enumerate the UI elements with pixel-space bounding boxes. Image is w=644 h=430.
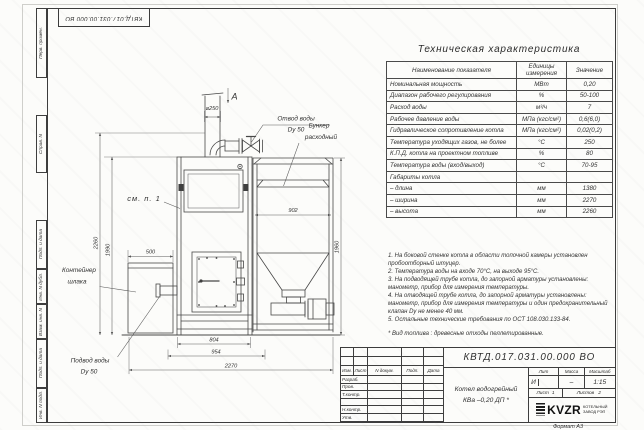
title-block-revision-grid: Изм. Лист N докум. Подп. Дата Разраб. Пр…: [341, 348, 444, 422]
margin-label: Взам. инв. N: [39, 308, 44, 336]
spec-table: Наименование показателя Единицы измерени…: [386, 61, 613, 218]
margin-label: Инв. N подл.: [39, 391, 44, 419]
margin-box-perv-primen: Перв. примен.: [36, 8, 47, 78]
table-row: – ширинамм2270: [387, 194, 613, 206]
product-name-cell: Котел водогрейный КВа –0,20 ДП *: [444, 368, 529, 422]
see-note-label: см. п. 1: [127, 194, 161, 203]
table-cell: °С: [517, 136, 567, 148]
table-cell: Температура уходящих газов, не более: [387, 136, 517, 148]
slag-container-label: Контейнер: [62, 266, 96, 274]
company-logo-text: KVZR: [547, 403, 581, 417]
table-row: Температура воды (вход/выход)°С70-95: [387, 160, 613, 172]
boiler-outline: [122, 93, 340, 335]
table-cell: 70-95: [567, 160, 613, 172]
table-cell: Номинальная мощность: [387, 79, 517, 91]
table-row: Габариты котла: [387, 171, 613, 183]
table-cell: МПа (кгс/см²): [517, 125, 567, 137]
bunker-label-2: расходный: [304, 133, 338, 141]
col-header-value: Значение: [567, 62, 613, 79]
col-podp: Подп.: [402, 366, 424, 376]
dim-804: 804: [209, 338, 218, 344]
fuel-type-footnote: * Вид топлива : древесные отходы пеллети…: [388, 331, 612, 339]
margin-box-vzam-inv: Взам. инв. N: [36, 304, 47, 339]
table-cell: %: [517, 148, 567, 160]
view-arrow-label: А: [230, 92, 237, 102]
sheet-label: Лист: [536, 391, 548, 396]
table-cell: МВт: [517, 79, 567, 91]
flipped-doc-number: КВТД.017.031.00.000 ВО: [65, 15, 142, 21]
lit-value: И: [529, 379, 539, 386]
col-header-units: Единицы измерения: [517, 62, 567, 79]
margin-label: Перв. примен.: [39, 27, 44, 59]
col-list: Лист: [354, 366, 368, 376]
col-header-name: Наименование показателя: [387, 62, 517, 79]
row-empty: [341, 399, 368, 407]
row-utv: Утв.: [341, 414, 368, 422]
col-dokum: N докум.: [368, 366, 402, 376]
mass-value: –: [559, 376, 585, 389]
water-outlet-valve: [210, 137, 263, 156]
format-note: Формат А3: [520, 424, 616, 430]
table-cell: м³/ч: [517, 102, 567, 114]
row-nkontr: Н.контр.: [341, 406, 368, 414]
leader-lines: [100, 125, 331, 357]
sheets-label: Листов: [577, 391, 594, 396]
drawing-sheet: Перв. примен. Справ. N Подп. и дата Инв.…: [0, 0, 644, 430]
spec-section: Техническая характеристика Наименование …: [386, 44, 612, 218]
bunker-outline: [253, 158, 334, 332]
margin-box-inv-dubl: Инв. N дубл.: [36, 269, 47, 304]
table-cell: 250: [567, 136, 613, 148]
table-cell: К.П.Д. котла на проектном топливе: [387, 148, 517, 160]
product-name-line1: Котел водогрейный: [455, 384, 518, 395]
slag-container-label-2: шлака: [67, 279, 86, 286]
sheets-cell: Листов 2: [563, 389, 615, 398]
table-cell: Габариты котла: [387, 171, 517, 183]
note-1: 1. На боковой стенке котла в области топ…: [388, 253, 612, 269]
company-subtitle-line2: ЗАВОД РЭП: [583, 409, 605, 414]
table-cell: 2270: [567, 194, 613, 206]
table-cell: – ширина: [387, 194, 517, 206]
water-inlet-label: Подвод воды: [71, 357, 110, 365]
margin-box-sprav-n: Справ. N: [36, 115, 47, 173]
col-izm: Изм.: [341, 366, 354, 376]
table-cell: Температура воды (вход/выход): [387, 160, 517, 172]
row-razrab: Разраб.: [341, 376, 368, 384]
table-cell: МПа (кгс/см²): [517, 113, 567, 125]
water-outlet-dn: Dy 50: [288, 127, 305, 134]
dim-1960: 1960: [335, 240, 341, 253]
table-cell: 7: [567, 102, 613, 114]
dim-2260: 2260: [94, 236, 100, 250]
margin-box-inv-podl: Инв. N подл.: [36, 388, 47, 423]
table-cell: – длина: [387, 183, 517, 195]
spec-table-title: Техническая характеристика: [386, 44, 612, 55]
margin-box-podp-data-1: Подп. и дата: [36, 220, 47, 269]
table-cell: Рабочее давление воды: [387, 113, 517, 125]
water-outlet-label: Отвод воды: [277, 115, 315, 123]
note-3: 3. На подводящей трубе котла, до запорно…: [388, 277, 612, 293]
lit-value-cell: И: [529, 376, 559, 389]
table-row: Номинальная мощностьМВт0,20: [387, 79, 613, 91]
mass-header: Масса: [559, 368, 585, 376]
col-data: Дата: [424, 366, 444, 376]
dim-902: 902: [288, 208, 298, 214]
dim-500: 500: [146, 250, 156, 256]
dim-1990: 1990: [106, 243, 112, 256]
sheets-value: 2: [598, 391, 601, 396]
water-inlet-dn: Dy 50: [81, 369, 98, 376]
margin-box-podp-data-2: Подп. и дата: [36, 339, 47, 388]
table-row: Температура уходящих газов, не более°С25…: [387, 136, 613, 148]
dim-954: 954: [211, 350, 220, 356]
chimney-diameter-dim: ⌀250: [206, 106, 220, 112]
table-cell: мм: [517, 183, 567, 195]
doc-number: КВТД.017.031.00.000 ВО: [444, 348, 615, 368]
product-name-line2: КВа –0,20 ДП *: [463, 395, 509, 406]
table-cell: 2260: [567, 206, 613, 218]
title-block: Изм. Лист N докум. Подп. Дата Разраб. Пр…: [340, 347, 616, 423]
table-cell: 0,20: [567, 79, 613, 91]
scale-header: Масштаб: [585, 368, 615, 376]
scale-value: 1:15: [585, 376, 615, 389]
note-5: 5. Остальные технические требования по О…: [388, 317, 612, 325]
table-row: Рабочее давление водыМПа (кгс/см²)0,6(6,…: [387, 113, 613, 125]
table-row: Расход водым³/ч7: [387, 102, 613, 114]
table-cell: Гидравлическое сопротивление котла: [387, 125, 517, 137]
table-row: – высотамм2260: [387, 206, 613, 218]
row-prov: Пров.: [341, 384, 368, 392]
boiler-general-view: А ⌀250 см. п. 1 Отвод воды Dy 50 Бункер …: [50, 30, 350, 380]
table-cell: Диапазон рабочего регулирования: [387, 90, 517, 102]
door-bolts: [179, 166, 249, 307]
table-cell: 50-100: [567, 90, 613, 102]
margin-label: Подп. и дата: [39, 348, 44, 378]
technical-notes: 1. На боковой стенке котла в области топ…: [388, 253, 612, 339]
margin-label: Справ. N: [39, 134, 44, 154]
table-cell: %: [517, 90, 567, 102]
table-cell: 1380: [567, 183, 613, 195]
lit-header: Лит: [529, 368, 559, 376]
margin-label: Инв. N дубл.: [39, 273, 44, 301]
table-row: Диапазон рабочего регулирования%50-100: [387, 90, 613, 102]
bunker-label: Бункер: [309, 123, 330, 130]
kvzr-logo-icon: [536, 403, 545, 416]
note-4: 4. На отводящей трубе котла, до запорной…: [388, 293, 612, 317]
row-tkontr: Т.контр.: [341, 391, 368, 399]
dim-2270: 2270: [224, 364, 238, 370]
sheet-cell: Лист 1: [529, 389, 563, 398]
margin-label: Подп. и дата: [39, 229, 44, 259]
table-header-row: Наименование показателя Единицы измерени…: [387, 62, 613, 79]
table-cell: 80: [567, 148, 613, 160]
flipped-doc-number-box: КВТД.017.031.00.000 ВО: [58, 8, 150, 27]
company-subtitle: КОТЕЛЬНЫЙ ЗАВОД РЭП: [583, 405, 607, 415]
table-cell: 0,02(0,2): [567, 125, 613, 137]
table-cell: [567, 171, 613, 183]
note-2: 2. Температура воды на входе 70°С, на вы…: [388, 269, 612, 277]
table-row: – длинамм1380: [387, 183, 613, 195]
table-cell: мм: [517, 206, 567, 218]
table-row: К.П.Д. котла на проектном топливе%80: [387, 148, 613, 160]
table-cell: °С: [517, 160, 567, 172]
table-cell: [517, 171, 567, 183]
table-row: Гидравлическое сопротивление котлаМПа (к…: [387, 125, 613, 137]
table-cell: Расход воды: [387, 102, 517, 114]
table-cell: – высота: [387, 206, 517, 218]
sheet-value: 1: [552, 391, 555, 396]
table-cell: мм: [517, 194, 567, 206]
company-logo-cell: KVZR КОТЕЛЬНЫЙ ЗАВОД РЭП: [529, 398, 615, 422]
table-cell: 0,6(6,0): [567, 113, 613, 125]
